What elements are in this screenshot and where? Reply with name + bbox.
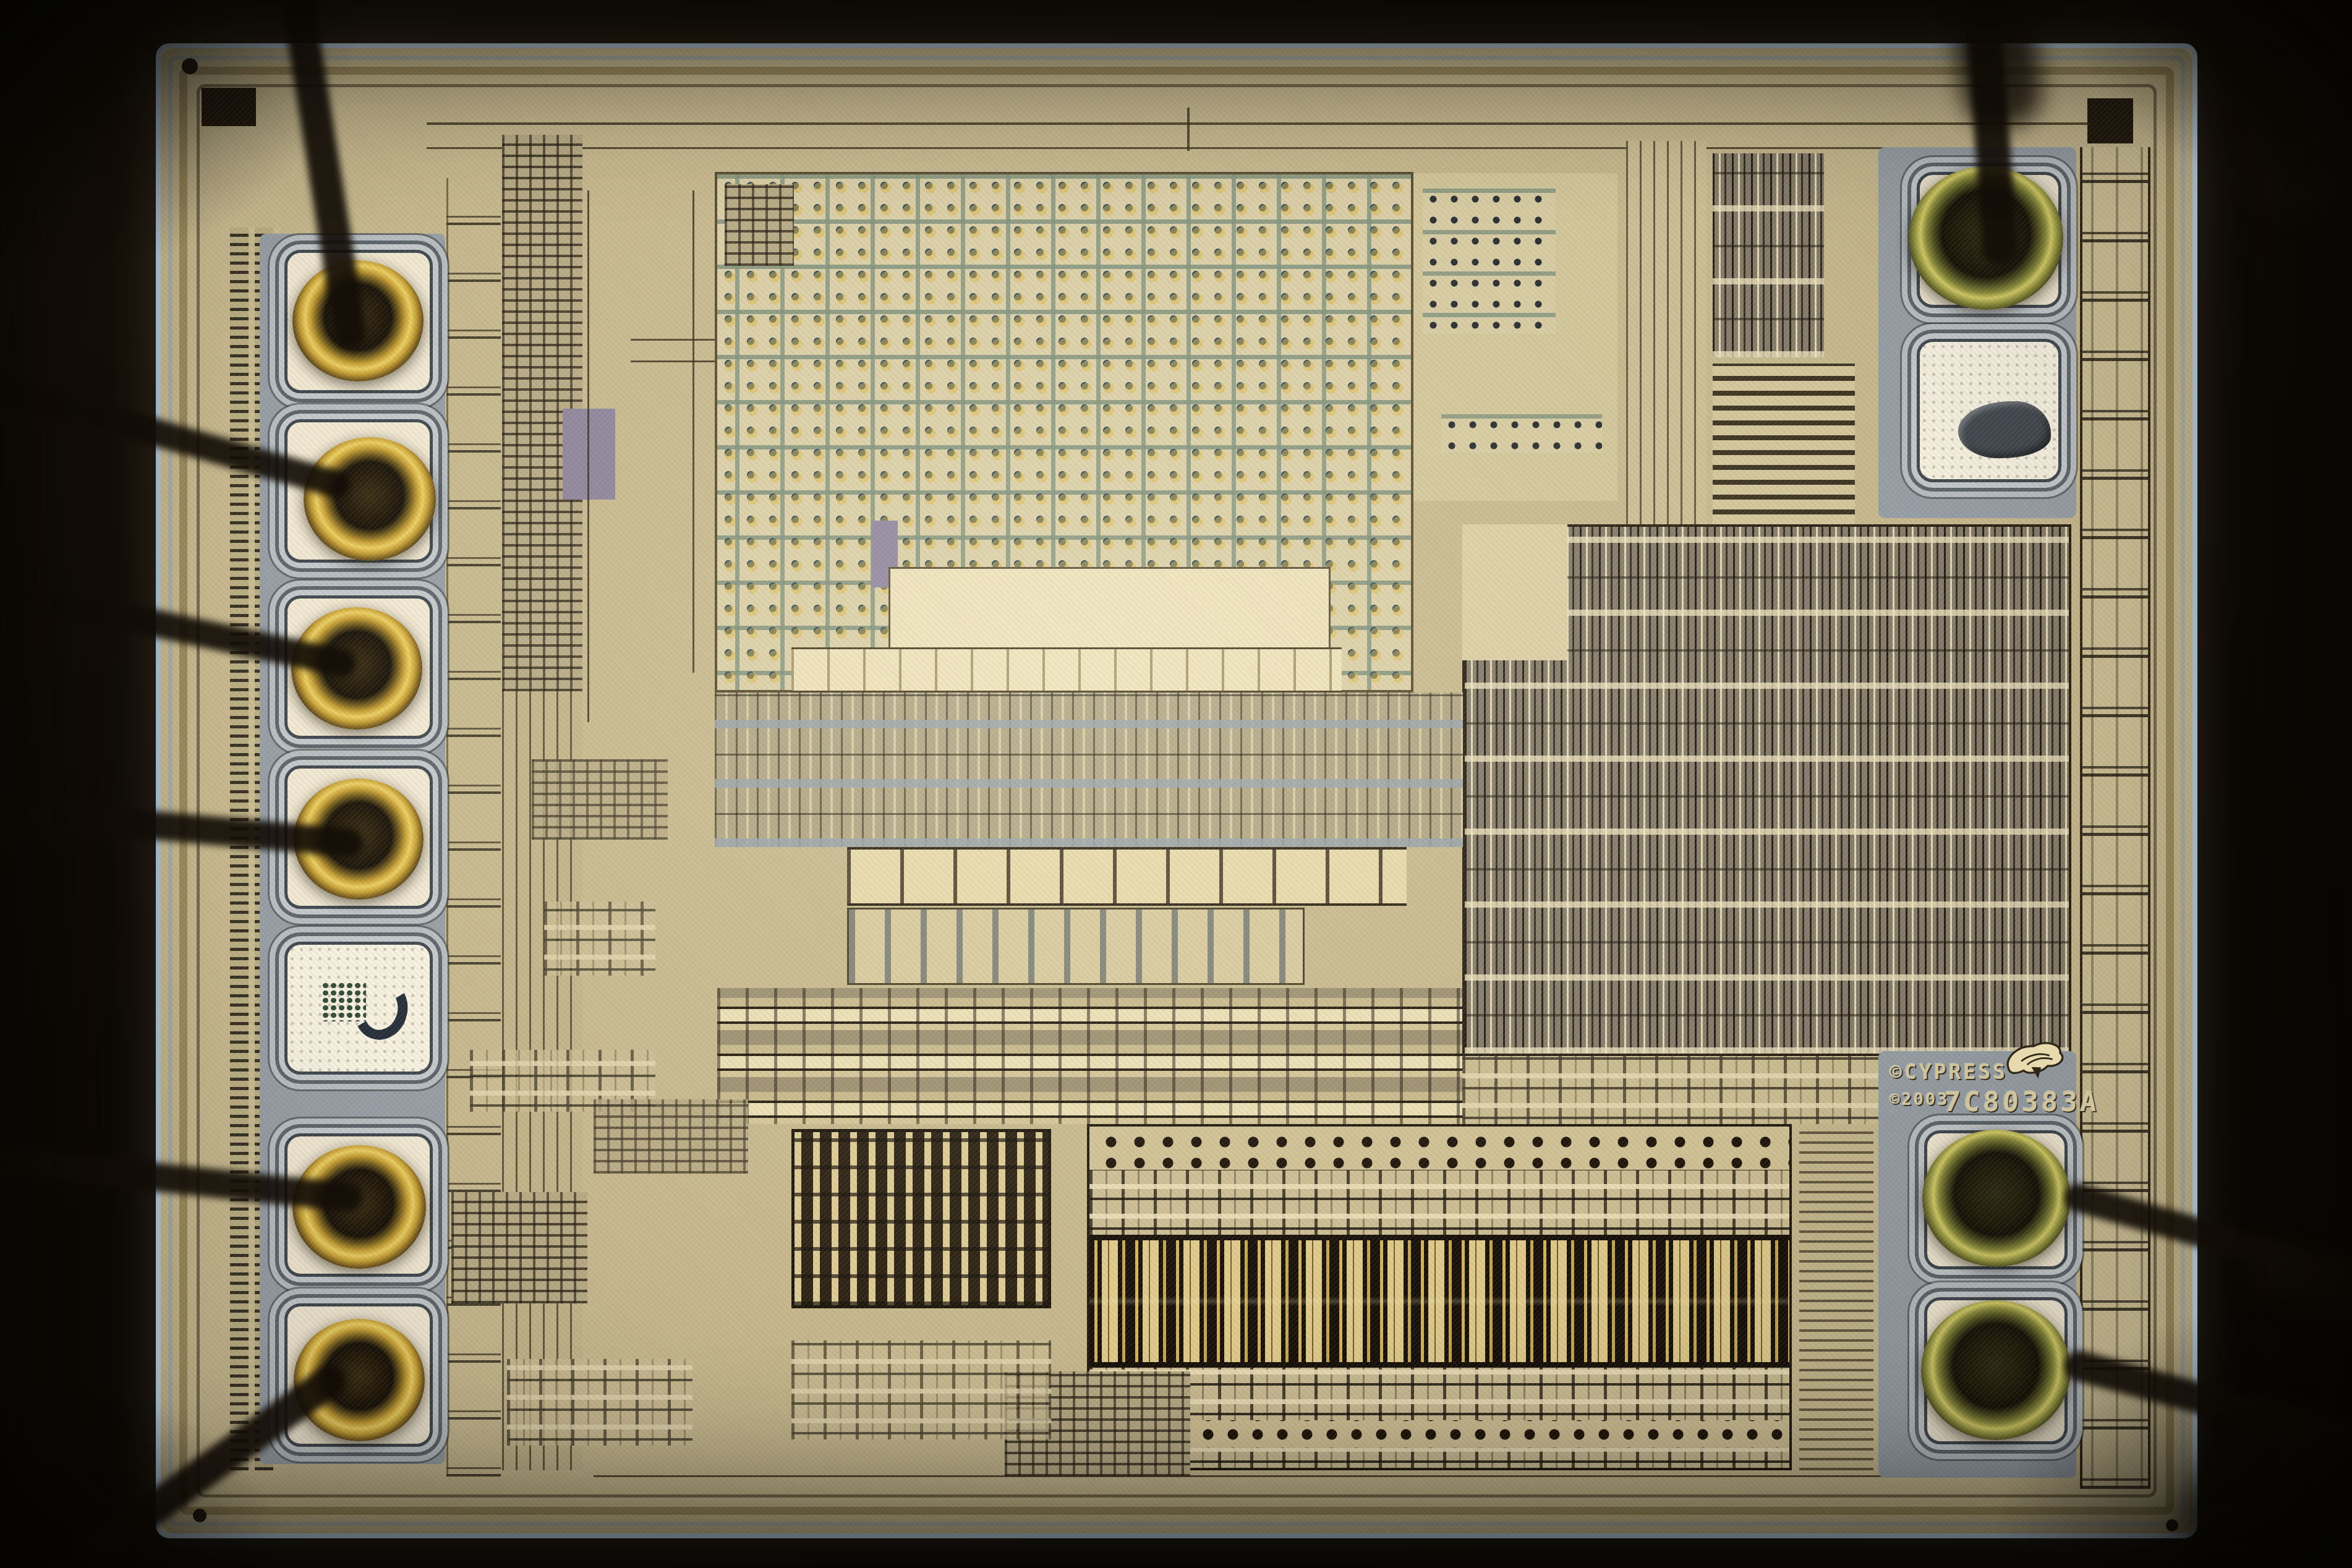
bond-wire-bottom-right-1-blur (2237, 1238, 2352, 1334)
bond-pad-bottom-right-1 (1924, 1130, 2068, 1269)
sub-array-1 (1423, 189, 1556, 334)
io-cell-column-right (2080, 147, 2150, 1489)
analog-block-rows (715, 692, 1463, 847)
metal-routing-rows (717, 988, 1462, 1124)
driver-dash-band-3 (1089, 1448, 1789, 1468)
ball-bond (1922, 1130, 2071, 1267)
driver-dot-row-bottom (1089, 1420, 1789, 1448)
pad-debris-blob (1958, 401, 2051, 458)
die-marking-brand: ©CYPRESS (1890, 1060, 2008, 1084)
top-routing-line-2 (427, 147, 1935, 149)
analog-column (1626, 141, 1706, 574)
die-marking-block: ©CYPRESS ©2003 7C80383A (1880, 1051, 2084, 1131)
ball-bond (304, 437, 436, 561)
mid-left-block-1 (532, 759, 668, 840)
die-marking-part-number: 7C80383A (1943, 1086, 2101, 1117)
die-corner-mark-br-dot (2166, 1519, 2178, 1532)
routing-vline-2 (692, 190, 694, 673)
bottom-left-block-2 (451, 1192, 587, 1303)
routing-vline-1 (587, 190, 589, 722)
top-right-logic-block (1713, 153, 1824, 357)
bottom-left-block-4 (594, 1099, 748, 1174)
below-comb-rows (791, 1340, 1051, 1439)
mid-left-block-2 (544, 901, 655, 976)
bottom-routing-line (594, 1475, 1892, 1477)
bond-pad-bottom-right-2 (1924, 1297, 2068, 1444)
bond-pad-left-7 (284, 1303, 433, 1447)
sub-array-2 (1441, 414, 1602, 453)
array-corner-block (725, 184, 794, 266)
comb-structure-block (791, 1129, 1051, 1308)
routing-hline-2 (631, 360, 717, 362)
array-plate-band (888, 567, 1331, 657)
analog-cream-band (847, 847, 1407, 906)
capacitor-array (715, 172, 1413, 692)
bond-pad-left-5-empty (284, 942, 433, 1075)
die-corner-mark-bl-dot (193, 1509, 207, 1522)
analog-cell-row-block (847, 908, 1305, 985)
driver-dash-band-2 (1089, 1368, 1789, 1420)
bond-pad-left-2 (284, 419, 433, 563)
logic-notch (1462, 524, 1567, 660)
die-photo-stage: ©CYPRESS ©2003 7C80383A (0, 0, 2352, 1568)
driver-dot-row-top (1089, 1127, 1789, 1170)
routing-hline-1 (631, 339, 717, 341)
out-of-focus-wire-blob (2189, 1441, 2352, 1568)
die-corner-mark-tl-square (202, 88, 256, 126)
right-stripe-column (1799, 1124, 1873, 1470)
array-cell-row (791, 647, 1342, 692)
bottom-left-block-3 (507, 1359, 692, 1446)
top-routing-line-1 (427, 122, 2090, 125)
capacitor-array-extension (1413, 173, 1617, 501)
cypress-tree-logo-icon (1999, 1034, 2071, 1085)
ball-bond (1921, 1300, 2071, 1440)
output-driver-array (1089, 1235, 1789, 1368)
output-driver-block (1087, 1124, 1792, 1470)
die-corner-mark-tr-square (2087, 98, 2133, 143)
bond-pad-top-right-2-empty (1917, 339, 2061, 482)
die-marking-year: ©2003 (1890, 1089, 1949, 1109)
driver-dash-band-1 (1089, 1170, 1789, 1235)
top-routing-stub (1187, 108, 1190, 151)
die-corner-mark-tl-dot (182, 58, 198, 74)
bond-wire-corner-streak (2178, 0, 2351, 224)
silicon-die: ©CYPRESS ©2003 7C80383A (156, 43, 2197, 1538)
